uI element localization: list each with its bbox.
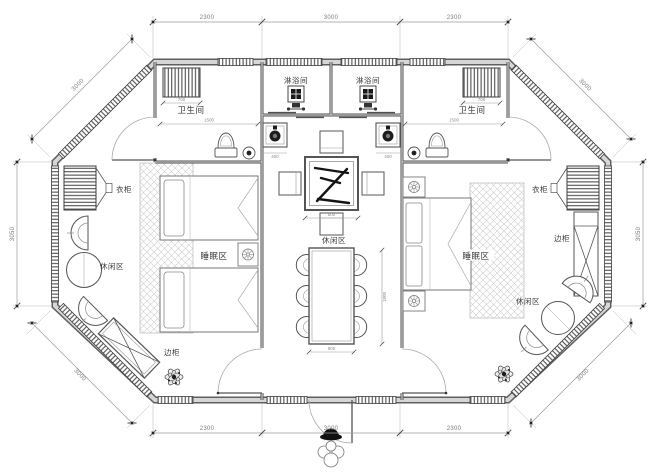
bathroom-left: 700 1500 卫生间 bbox=[158, 68, 260, 159]
lamp-icon bbox=[408, 181, 419, 192]
dim-top-middle: 3000 bbox=[324, 15, 339, 21]
door-right-room bbox=[402, 349, 447, 394]
window-top-left bbox=[218, 59, 253, 66]
dim-bottom-right: 2300 bbox=[447, 426, 462, 432]
towel-rack-icon bbox=[163, 68, 200, 97]
window-bottom-right bbox=[356, 397, 396, 404]
left-room: 衣柜 休闲区 睡眠区 边柜 bbox=[64, 166, 258, 387]
dim-right-side: 3050 bbox=[636, 226, 642, 241]
dim-left-side: 3050 bbox=[10, 226, 16, 241]
shower-room-left: 淋浴间 bbox=[284, 75, 308, 111]
towel-rack-icon bbox=[463, 68, 500, 97]
dim-rack-right: 700 bbox=[478, 97, 486, 102]
pillow bbox=[406, 203, 422, 243]
room-label-wardrobe-right: 衣柜 bbox=[532, 184, 548, 194]
dim-dining-width: 800 bbox=[328, 346, 336, 351]
dim-top-left: 2300 bbox=[200, 15, 215, 21]
bed-single-bottom bbox=[160, 268, 258, 332]
dim-basin-right: 400 bbox=[384, 154, 392, 159]
dining-set: 1800 800 bbox=[296, 248, 387, 354]
lamp-icon bbox=[408, 295, 419, 306]
dim-bottom-left: 2300 bbox=[200, 426, 215, 432]
floor-drain-icon bbox=[288, 86, 304, 102]
room-label-leisure-left: 休闲区 bbox=[100, 261, 124, 271]
window-bottom-left bbox=[267, 397, 307, 404]
window-diagonal-top-left bbox=[58, 65, 151, 158]
shower-valve-icon bbox=[359, 103, 377, 111]
floor-drain-icon bbox=[360, 86, 376, 102]
dim-diagonal-bottom-right: 3000 bbox=[576, 368, 591, 383]
dim-dining-length: 1800 bbox=[382, 291, 387, 302]
bed-double bbox=[403, 198, 471, 290]
lamp-icon bbox=[242, 249, 253, 260]
dim-top-right: 2300 bbox=[447, 15, 462, 21]
dim-diagonal-bottom-left: 3000 bbox=[72, 368, 87, 383]
room-label-bathroom-left: 卫生间 bbox=[177, 105, 204, 115]
room-label-shower-right: 淋浴间 bbox=[356, 75, 380, 85]
dim-diagonal-top-right: 3000 bbox=[577, 78, 592, 93]
window-top-shower-right bbox=[341, 59, 397, 66]
door-bathroom-right bbox=[507, 117, 551, 161]
washbasin-icon bbox=[263, 123, 287, 147]
window-left-wall bbox=[52, 166, 59, 302]
chair-east bbox=[362, 172, 384, 195]
dining-chair bbox=[353, 284, 367, 308]
dining-chair bbox=[353, 315, 367, 339]
wardrobe-icon bbox=[64, 166, 96, 210]
dining-chair bbox=[296, 315, 310, 339]
pillow bbox=[164, 180, 184, 236]
window-top-right bbox=[410, 59, 445, 66]
shower-valve-icon bbox=[287, 103, 305, 111]
dining-chair bbox=[296, 284, 310, 308]
room-label-sleeping-right: 睡眠区 bbox=[462, 251, 489, 261]
door-bathroom-left bbox=[112, 117, 156, 161]
plant-icon bbox=[165, 367, 183, 386]
square-table bbox=[305, 157, 358, 210]
shower-room-right: 淋浴间 bbox=[356, 75, 380, 111]
room-label-bathroom-right: 卫生间 bbox=[458, 105, 485, 115]
chair-west bbox=[279, 172, 301, 195]
toilet-icon bbox=[215, 133, 237, 157]
dining-chair bbox=[296, 253, 310, 277]
door-left-room bbox=[217, 349, 262, 394]
dim-diagonal-top-left: 3000 bbox=[71, 78, 86, 93]
dim-square-table: 800 bbox=[328, 212, 336, 217]
washbasin-icon bbox=[376, 123, 400, 147]
dining-table bbox=[309, 248, 354, 344]
dim-bath-left: 1500 bbox=[204, 118, 215, 123]
game-table: 800 bbox=[279, 131, 384, 235]
room-label-leisure-center: 休闲区 bbox=[322, 235, 346, 245]
window-bottom-far-right bbox=[470, 397, 505, 404]
floor-plan-page: 700 1500 卫生间 700 1500 卫生间 淋浴间 淋浴间 400 40… bbox=[0, 0, 651, 473]
window-diagonal-top-right bbox=[511, 65, 604, 158]
room-label-wardrobe-left: 衣柜 bbox=[116, 184, 132, 194]
dim-rack-left: 700 bbox=[178, 97, 186, 102]
room-label-leisure-right: 休闲区 bbox=[516, 296, 540, 306]
pillow bbox=[406, 246, 422, 286]
floor-plan-drawing: 700 1500 卫生间 700 1500 卫生间 淋浴间 淋浴间 400 40… bbox=[0, 0, 651, 473]
bathroom-right: 700 1500 卫生间 bbox=[403, 68, 505, 159]
dim-bottom-middle: 3000 bbox=[324, 426, 339, 432]
dim-bath-right: 1500 bbox=[449, 118, 460, 123]
window-top-shower-left bbox=[266, 59, 322, 66]
armchair-icon bbox=[67, 216, 88, 250]
window-bottom-far-left bbox=[158, 397, 193, 404]
figure-graphic bbox=[318, 429, 344, 468]
room-label-sleeping-left: 睡眠区 bbox=[200, 251, 227, 261]
room-label-side-cabinet-left: 边柜 bbox=[164, 347, 180, 357]
wardrobe-icon bbox=[567, 166, 599, 210]
room-label-shower-left: 淋浴间 bbox=[284, 75, 308, 85]
plant-icon bbox=[495, 364, 513, 383]
armchair-icon bbox=[510, 325, 549, 364]
toilet-icon bbox=[426, 133, 448, 157]
window-right-wall bbox=[605, 166, 612, 302]
bed-single-top bbox=[160, 176, 258, 240]
dining-chair bbox=[353, 253, 367, 277]
pillow bbox=[164, 272, 184, 328]
central-hall: 400 400 800 休闲区 1800 800 bbox=[263, 123, 400, 354]
room-label-side-cabinet-right: 边柜 bbox=[554, 233, 570, 243]
dim-basin-left: 400 bbox=[271, 154, 279, 159]
chair-north bbox=[320, 131, 343, 153]
